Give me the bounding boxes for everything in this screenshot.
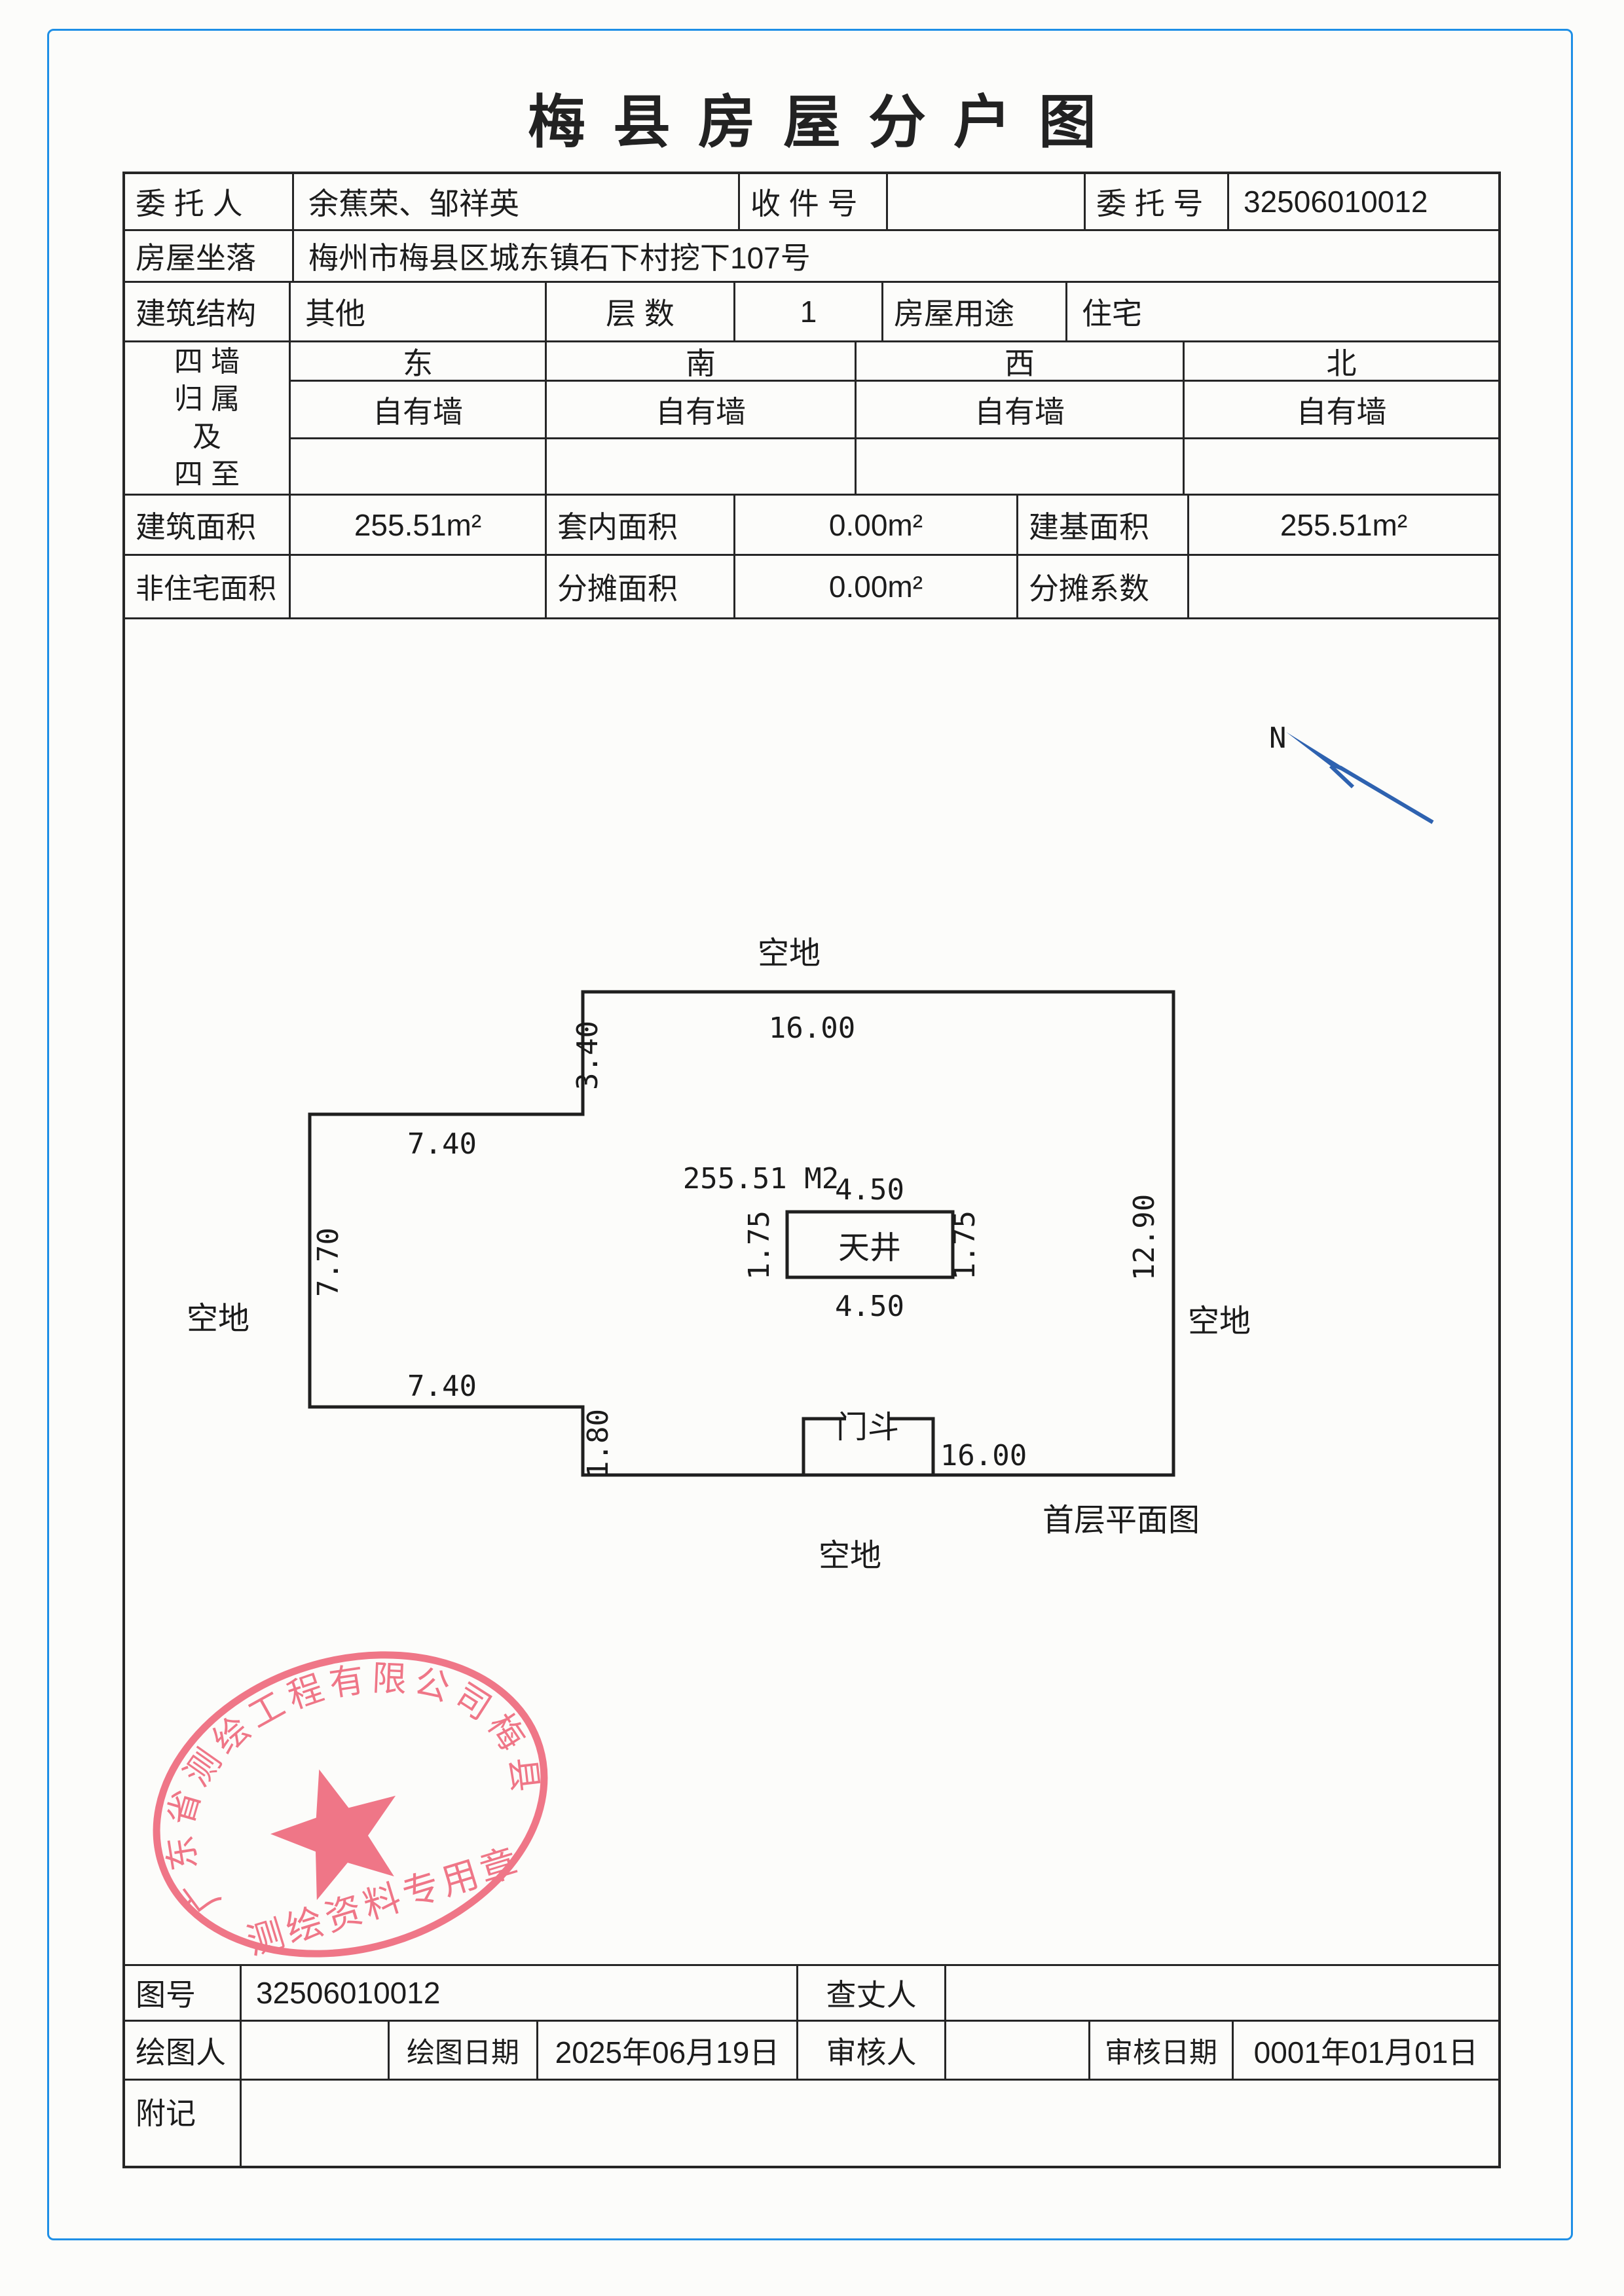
row-four-walls: 四 墙 归 属 及 四 至 东 南 西 北 自有墙 自有墙 自有墙 自有墙 bbox=[125, 342, 1498, 496]
form-table: 委 托 人 余蕉荣、邹祥英 收 件 号 委 托 号 32506010012 房屋… bbox=[122, 172, 1501, 2168]
draft-date-label: 绘图日期 bbox=[390, 2022, 538, 2079]
remarks-label: 附记 bbox=[125, 2081, 242, 2166]
document-title: 梅县房屋分户图 bbox=[0, 76, 1624, 159]
wall-north: 自有墙 bbox=[1185, 382, 1498, 437]
direction-north: 北 bbox=[1185, 342, 1498, 380]
surveyor-label: 查丈人 bbox=[798, 1966, 946, 2020]
row-location: 房屋坐落 梅州市梅县区城东镇石下村挖下107号 bbox=[125, 231, 1498, 283]
building-area-label: 建筑面积 bbox=[125, 496, 291, 554]
nonresidential-label: 非住宅面积 bbox=[125, 556, 291, 617]
consignor-value: 余蕉荣、邹祥英 bbox=[294, 174, 740, 229]
usage-value: 住宅 bbox=[1067, 283, 1498, 340]
shared-coef-value bbox=[1189, 556, 1498, 617]
floors-value: 1 bbox=[735, 283, 883, 340]
direction-south: 南 bbox=[547, 342, 857, 380]
review-date-label: 审核日期 bbox=[1090, 2022, 1234, 2079]
row-map-number: 图号 32506010012 查丈人 bbox=[125, 1966, 1498, 2022]
shared-coef-label: 分摊系数 bbox=[1018, 556, 1189, 617]
review-date-value: 0001年01月01日 bbox=[1234, 2022, 1498, 2079]
direction-east: 东 bbox=[291, 342, 547, 380]
consignor-label: 委 托 人 bbox=[125, 174, 294, 229]
receipt-no-label: 收 件 号 bbox=[740, 174, 888, 229]
map-no-value: 32506010012 bbox=[242, 1966, 798, 2020]
scanned-housing-plan-document: 梅县房屋分户图 委 托 人 余蕉荣、邹祥英 收 件 号 委 托 号 325060… bbox=[0, 0, 1624, 2296]
location-value: 梅州市梅县区城东镇石下村挖下107号 bbox=[294, 231, 1498, 281]
floor-plan-area bbox=[125, 619, 1498, 1966]
wall-south: 自有墙 bbox=[547, 382, 857, 437]
boundary-north bbox=[1185, 439, 1498, 494]
base-area-label: 建基面积 bbox=[1018, 496, 1189, 554]
reviewer-label: 审核人 bbox=[798, 2022, 946, 2079]
drafter-label: 绘图人 bbox=[125, 2022, 242, 2079]
structure-label: 建筑结构 bbox=[125, 283, 291, 340]
commission-no-label: 委 托 号 bbox=[1086, 174, 1229, 229]
wall-east: 自有墙 bbox=[291, 382, 547, 437]
row-drafter: 绘图人 绘图日期 2025年06月19日 审核人 审核日期 0001年01月01… bbox=[125, 2022, 1498, 2081]
map-no-label: 图号 bbox=[125, 1966, 242, 2020]
row-nonresidential-area: 非住宅面积 分摊面积 0.00m² 分摊系数 bbox=[125, 556, 1498, 619]
surveyor-value bbox=[946, 1966, 1498, 2020]
direction-west: 西 bbox=[857, 342, 1185, 380]
row-structure: 建筑结构 其他 层 数 1 房屋用途 住宅 bbox=[125, 283, 1498, 342]
floors-label: 层 数 bbox=[547, 283, 735, 340]
row-building-area: 建筑面积 255.51m² 套内面积 0.00m² 建基面积 255.51m² bbox=[125, 496, 1498, 556]
wall-west: 自有墙 bbox=[857, 382, 1185, 437]
shared-area-label: 分摊面积 bbox=[547, 556, 735, 617]
remarks-value bbox=[242, 2081, 1498, 2166]
structure-value: 其他 bbox=[291, 283, 547, 340]
four-walls-label: 四 墙 归 属 及 四 至 bbox=[125, 342, 291, 494]
boundary-west bbox=[857, 439, 1185, 494]
shared-area-value: 0.00m² bbox=[735, 556, 1018, 617]
inner-area-label: 套内面积 bbox=[547, 496, 735, 554]
nonresidential-value bbox=[291, 556, 547, 617]
building-area-value: 255.51m² bbox=[291, 496, 547, 554]
boundary-south bbox=[547, 439, 857, 494]
inner-area-value: 0.00m² bbox=[735, 496, 1018, 554]
base-area-value: 255.51m² bbox=[1189, 496, 1498, 554]
draft-date-value: 2025年06月19日 bbox=[538, 2022, 798, 2079]
walls-row: 自有墙 自有墙 自有墙 自有墙 bbox=[291, 382, 1498, 439]
four-walls-grid: 东 南 西 北 自有墙 自有墙 自有墙 自有墙 bbox=[291, 342, 1498, 494]
directions-row: 东 南 西 北 bbox=[291, 342, 1498, 382]
commission-no-value: 32506010012 bbox=[1229, 174, 1498, 229]
reviewer-value bbox=[946, 2022, 1090, 2079]
usage-label: 房屋用途 bbox=[883, 283, 1067, 340]
row-consignor: 委 托 人 余蕉荣、邹祥英 收 件 号 委 托 号 32506010012 bbox=[125, 174, 1498, 231]
drafter-value bbox=[242, 2022, 390, 2079]
receipt-no-value bbox=[888, 174, 1086, 229]
boundary-east bbox=[291, 439, 547, 494]
boundaries-row bbox=[291, 439, 1498, 494]
row-remarks: 附记 bbox=[125, 2081, 1498, 2166]
location-label: 房屋坐落 bbox=[125, 231, 294, 281]
